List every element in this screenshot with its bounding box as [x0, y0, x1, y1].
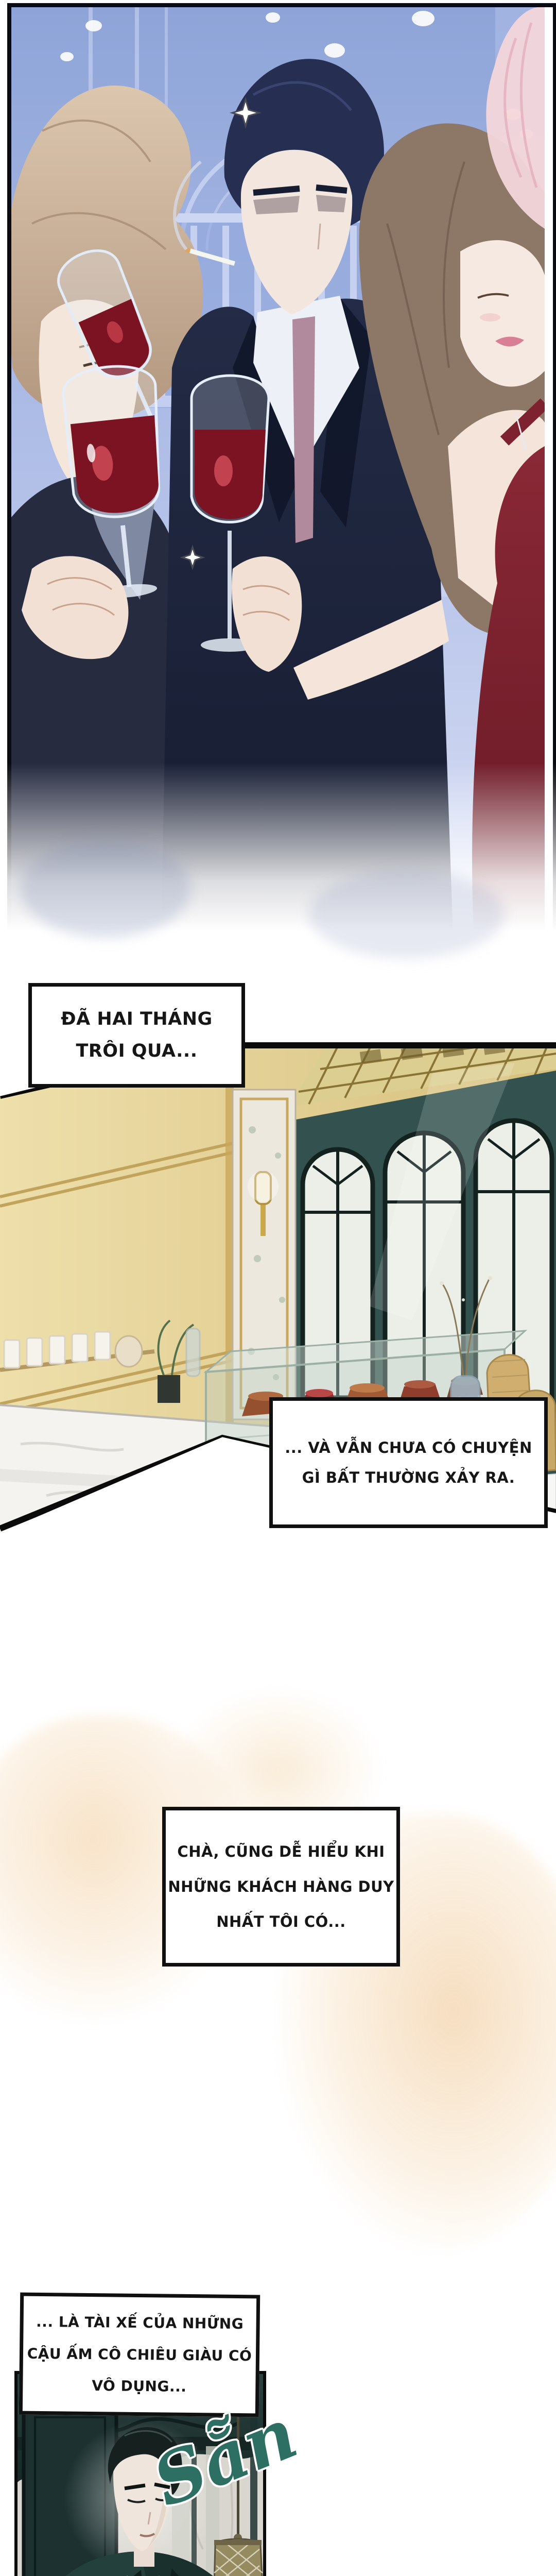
narration-line: NHỮNG KHÁCH HÀNG DUY — [168, 1869, 394, 1904]
watercolor-smudge — [21, 840, 190, 938]
narration-line: ... LÀ TÀI XẾ CỦA NHỮNG — [36, 2306, 244, 2340]
narration-line: CHÀ, CŨNG DỄ HIỂU KHI — [177, 1834, 385, 1869]
watercolor-smudge — [309, 871, 505, 958]
narration-line: CẬU ẤM CÔ CHIÊU GIÀU CÓ — [27, 2337, 252, 2371]
narration-line: ... VÀ VẪN CHƯA CÓ CHUYỆN — [285, 1433, 532, 1463]
rose-tie — [292, 316, 315, 543]
narration-box-2: ... VÀ VẪN CHƯA CÓ CHUYỆN GÌ BẤT THƯỜNG … — [269, 1397, 548, 1528]
webtoon-page: ĐÃ HAI THÁNG TRÔI QUA... — [0, 0, 556, 2576]
jar — [115, 1336, 142, 1367]
sconce-stem — [260, 1200, 266, 1236]
narration-box-1: ĐÃ HAI THÁNG TRÔI QUA... — [28, 983, 245, 1088]
narration-line: ĐÃ HAI THÁNG — [61, 1004, 212, 1035]
narration-box-4: ... LÀ TÀI XẾ CỦA NHỮNG CẬU ẤM CÔ CHIÊU … — [19, 2293, 260, 2417]
bottle — [186, 1329, 200, 1376]
narration-line: GÌ BẤT THƯỜNG XẢY RA. — [302, 1463, 515, 1493]
narration-line: VÔ DỤNG... — [92, 2370, 187, 2403]
narration-box-3: CHÀ, CŨNG DỄ HIỂU KHI NHỮNG KHÁCH HÀNG D… — [162, 1807, 400, 1967]
plant-pot — [158, 1375, 180, 1403]
narration-line: NHẤT TÔI CÓ... — [216, 1904, 346, 1939]
narration-line: TRÔI QUA... — [76, 1036, 197, 1067]
